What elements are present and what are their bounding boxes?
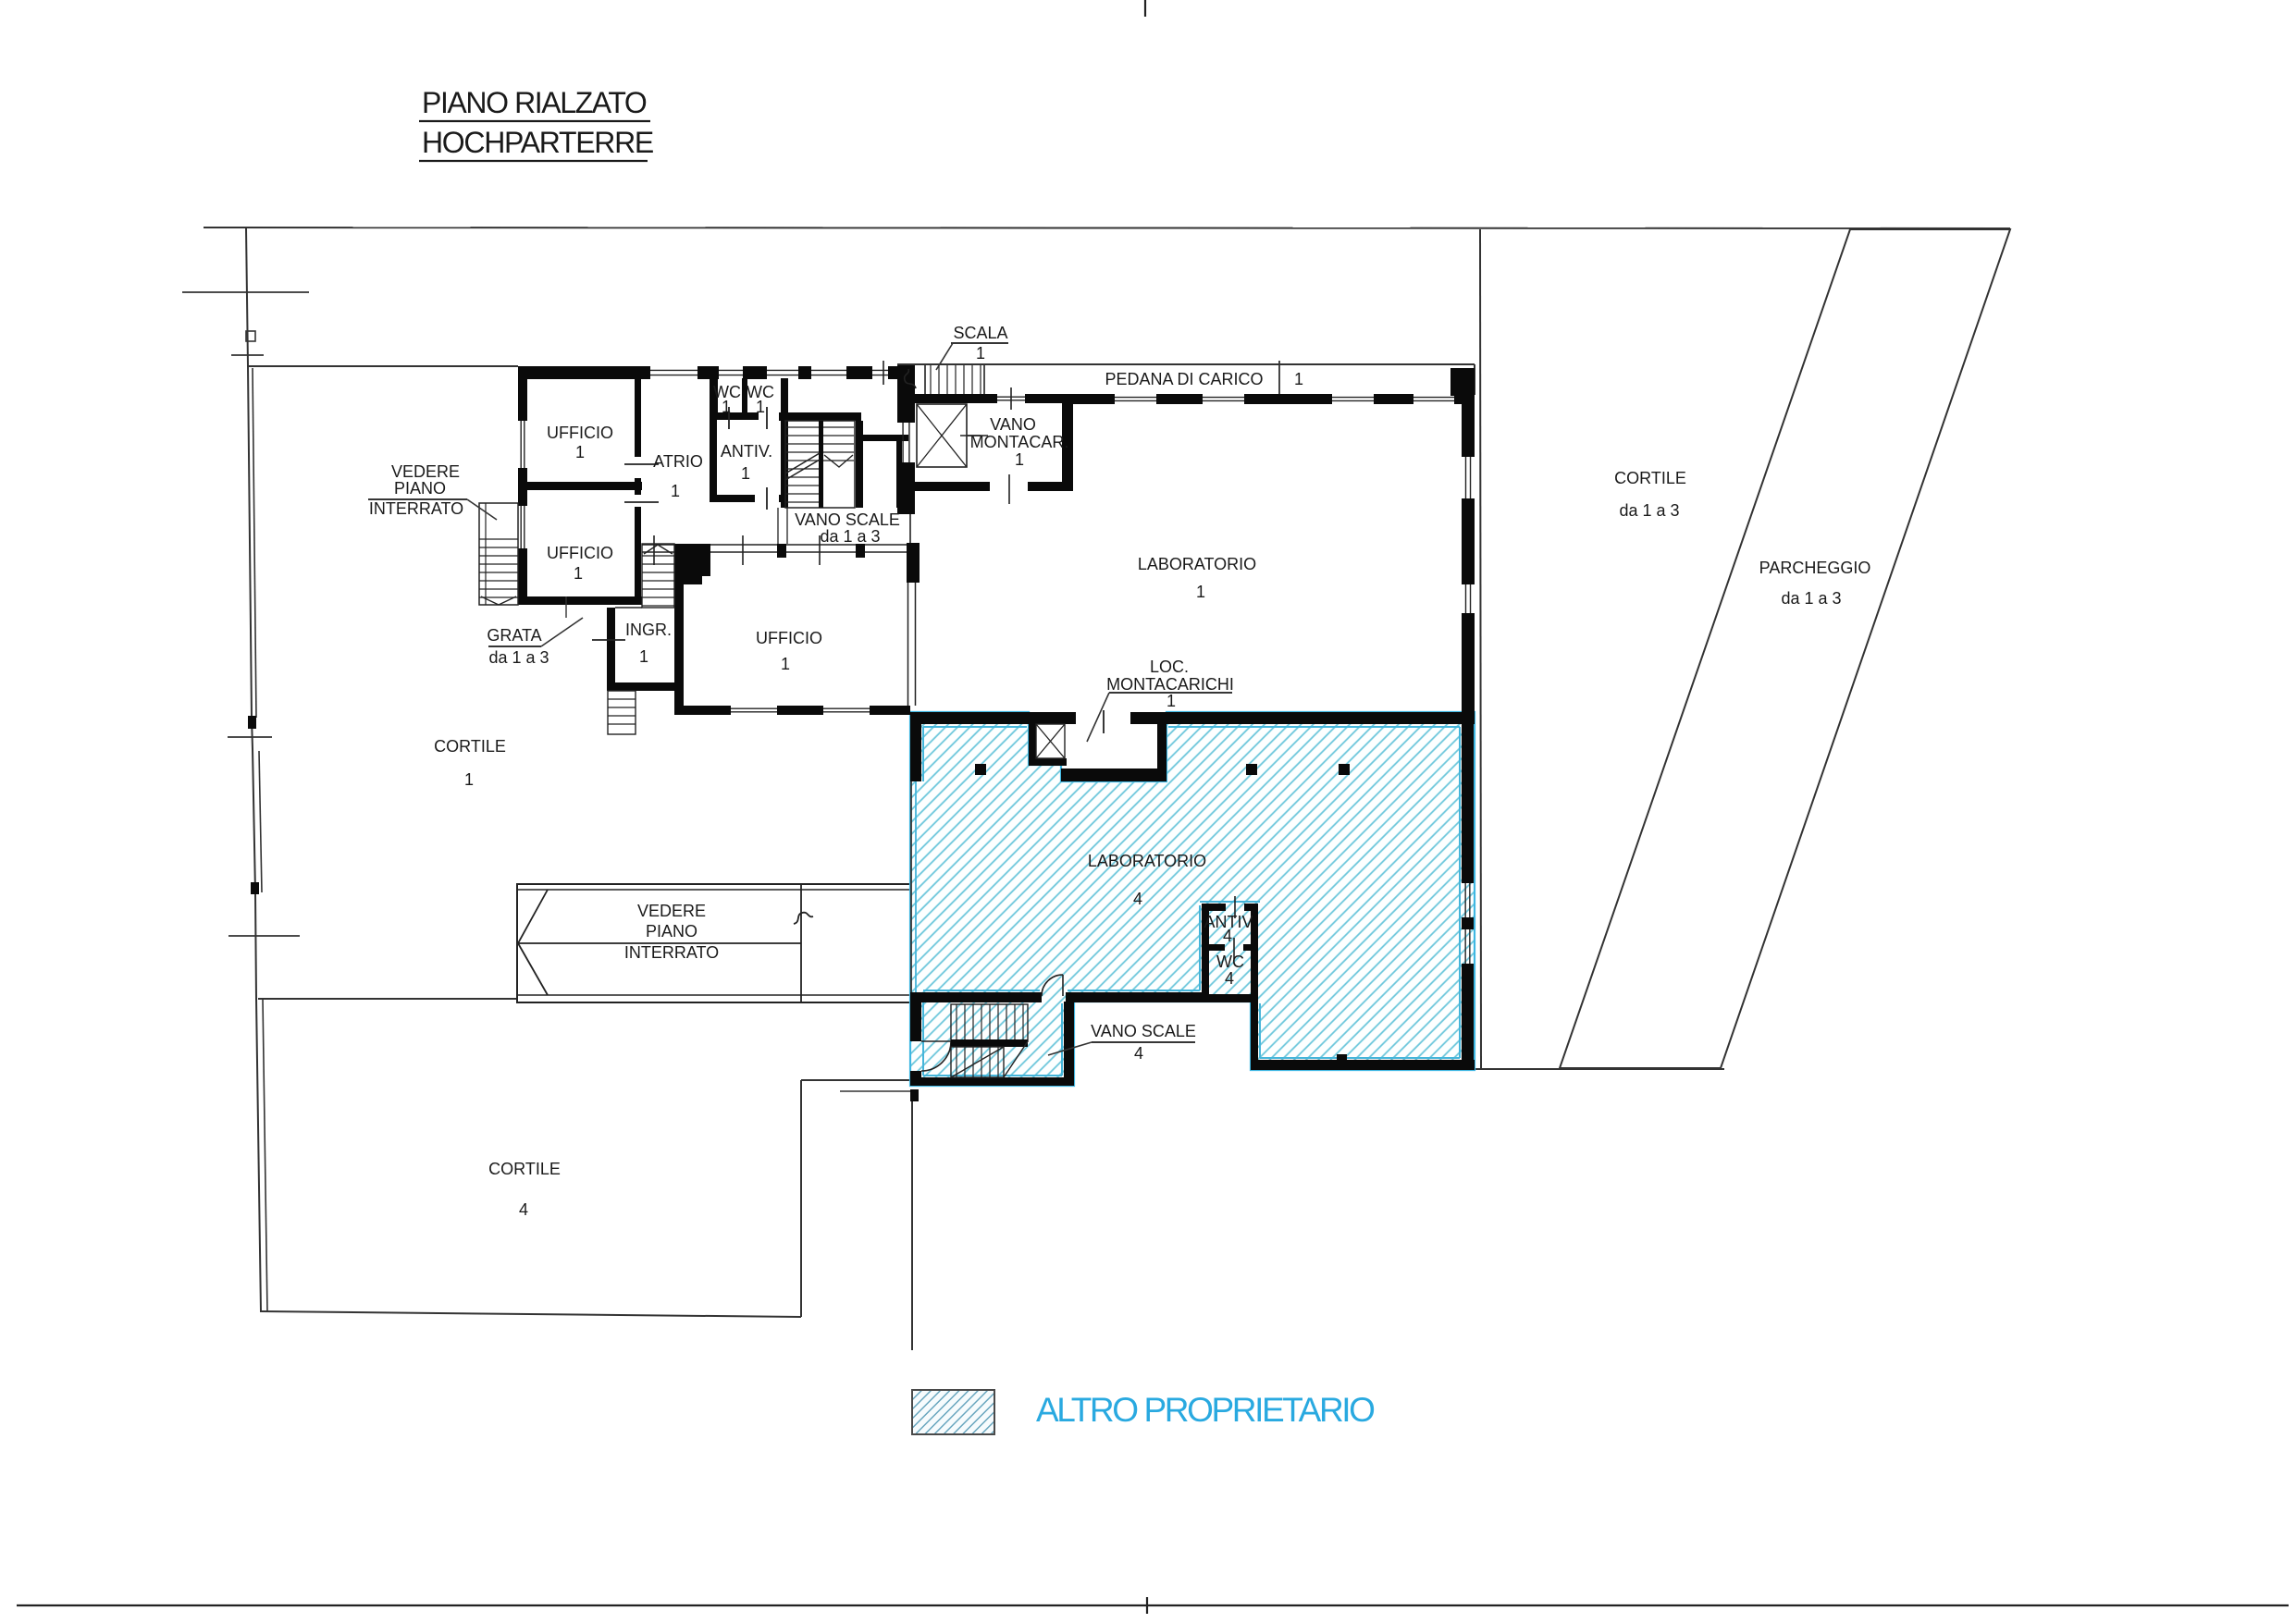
svg-text:INTERRATO: INTERRATO xyxy=(624,943,719,962)
svg-text:4: 4 xyxy=(1225,969,1234,988)
svg-text:1: 1 xyxy=(575,443,585,461)
svg-text:UFFICIO: UFFICIO xyxy=(756,629,822,647)
svg-text:1: 1 xyxy=(976,344,985,363)
svg-text:1: 1 xyxy=(1294,370,1303,388)
svg-text:VEDERE: VEDERE xyxy=(391,462,460,481)
svg-text:ANTIV.: ANTIV. xyxy=(721,442,772,461)
svg-text:CORTILE: CORTILE xyxy=(434,737,506,756)
svg-text:PIANO: PIANO xyxy=(646,922,697,941)
svg-text:da 1 a 3: da 1 a 3 xyxy=(1781,589,1841,608)
svg-text:WC: WC xyxy=(1216,953,1244,971)
svg-text:PEDANA DI CARICO: PEDANA DI CARICO xyxy=(1105,370,1263,388)
svg-text:PARCHEGGIO: PARCHEGGIO xyxy=(1759,559,1871,577)
svg-text:VEDERE: VEDERE xyxy=(637,902,706,920)
svg-text:UFFICIO: UFFICIO xyxy=(547,424,613,442)
svg-text:1: 1 xyxy=(781,655,790,673)
svg-text:GRATA: GRATA xyxy=(487,626,541,645)
svg-text:1: 1 xyxy=(464,770,474,789)
svg-text:CORTILE: CORTILE xyxy=(488,1160,561,1178)
svg-text:1: 1 xyxy=(671,482,680,500)
svg-text:1: 1 xyxy=(1167,692,1176,710)
svg-text:1: 1 xyxy=(741,464,750,483)
svg-text:VANO SCALE: VANO SCALE xyxy=(1091,1022,1196,1040)
svg-text:4: 4 xyxy=(1223,927,1232,945)
svg-text:INGR.: INGR. xyxy=(625,621,672,639)
svg-text:ALTRO PROPRIETARIO: ALTRO PROPRIETARIO xyxy=(1036,1391,1375,1429)
svg-text:LABORATORIO: LABORATORIO xyxy=(1088,852,1206,870)
svg-text:LABORATORIO: LABORATORIO xyxy=(1138,555,1256,573)
svg-text:da 1 a 3: da 1 a 3 xyxy=(820,527,880,546)
svg-text:4: 4 xyxy=(1133,890,1142,908)
svg-text:VANO: VANO xyxy=(990,415,1036,434)
svg-text:4: 4 xyxy=(1134,1044,1143,1063)
svg-text:da 1 a 3: da 1 a 3 xyxy=(1619,501,1679,520)
svg-text:MONTACARICHI: MONTACARICHI xyxy=(1106,675,1234,694)
svg-text:CORTILE: CORTILE xyxy=(1614,469,1686,487)
svg-text:1: 1 xyxy=(756,398,765,416)
svg-text:1: 1 xyxy=(639,647,648,666)
svg-text:PIANO RIALZATO: PIANO RIALZATO xyxy=(422,86,647,119)
svg-text:1: 1 xyxy=(722,398,731,416)
svg-text:ATRIO: ATRIO xyxy=(653,452,703,471)
svg-text:INTERRATO: INTERRATO xyxy=(369,499,463,518)
svg-text:LOC.: LOC. xyxy=(1150,658,1189,676)
svg-text:SCALA: SCALA xyxy=(953,324,1007,342)
svg-text:UFFICIO: UFFICIO xyxy=(547,544,613,562)
svg-text:da 1 a 3: da 1 a 3 xyxy=(488,648,549,667)
svg-text:4: 4 xyxy=(519,1200,528,1219)
svg-text:PIANO: PIANO xyxy=(394,479,446,498)
svg-text:1: 1 xyxy=(574,564,583,583)
svg-text:VANO SCALE: VANO SCALE xyxy=(795,510,900,529)
svg-text:1: 1 xyxy=(1015,450,1024,469)
svg-text:1: 1 xyxy=(1196,583,1205,601)
svg-text:HOCHPARTERRE: HOCHPARTERRE xyxy=(422,126,653,159)
svg-text:MONTACAR.: MONTACAR. xyxy=(970,433,1069,451)
